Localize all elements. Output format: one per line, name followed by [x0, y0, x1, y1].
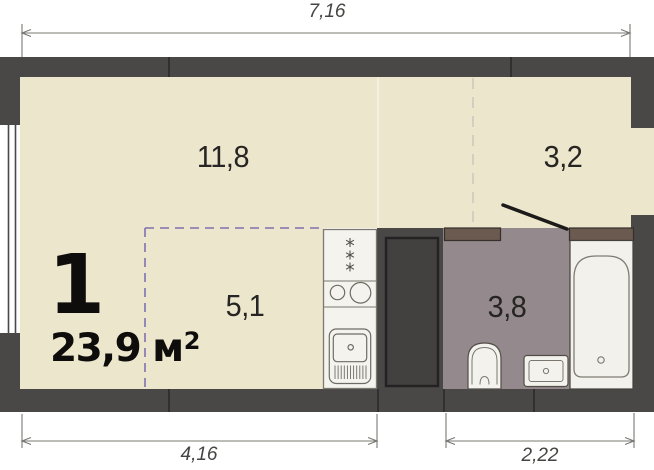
unit-area-value: 23,9 м [50, 326, 183, 371]
plan-linework [0, 0, 654, 470]
washbasin-icon [524, 356, 568, 387]
kitchen-unit [324, 230, 377, 389]
toilet-icon [468, 343, 501, 389]
dimension-label-top: 7,16 [287, 1, 367, 23]
unit-number: 1 [48, 247, 103, 325]
door-swing-icon [503, 205, 567, 229]
room-label-kitchen: 5,1 [197, 288, 294, 324]
floor-plan-canvas: 7,16 4,16 2,22 11,8 3,2 5,1 3,8 1 23,9 м… [0, 0, 654, 470]
unit-area-superscript: 2 [184, 327, 199, 355]
room-label-bathroom: 3,8 [459, 289, 556, 325]
window-glazing-icon [9, 125, 16, 333]
room-label-hall: 3,2 [515, 139, 612, 175]
unit-area: 23,9 м2 [50, 327, 198, 368]
bathtub-icon [570, 241, 633, 390]
dimension-label-bottom-right: 2,22 [500, 445, 580, 467]
room-label-living: 11,8 [175, 139, 272, 175]
bathroom-lintels [445, 228, 634, 241]
vent-shaft-inner [386, 238, 438, 386]
dimension-label-bottom-left: 4,16 [159, 444, 239, 466]
